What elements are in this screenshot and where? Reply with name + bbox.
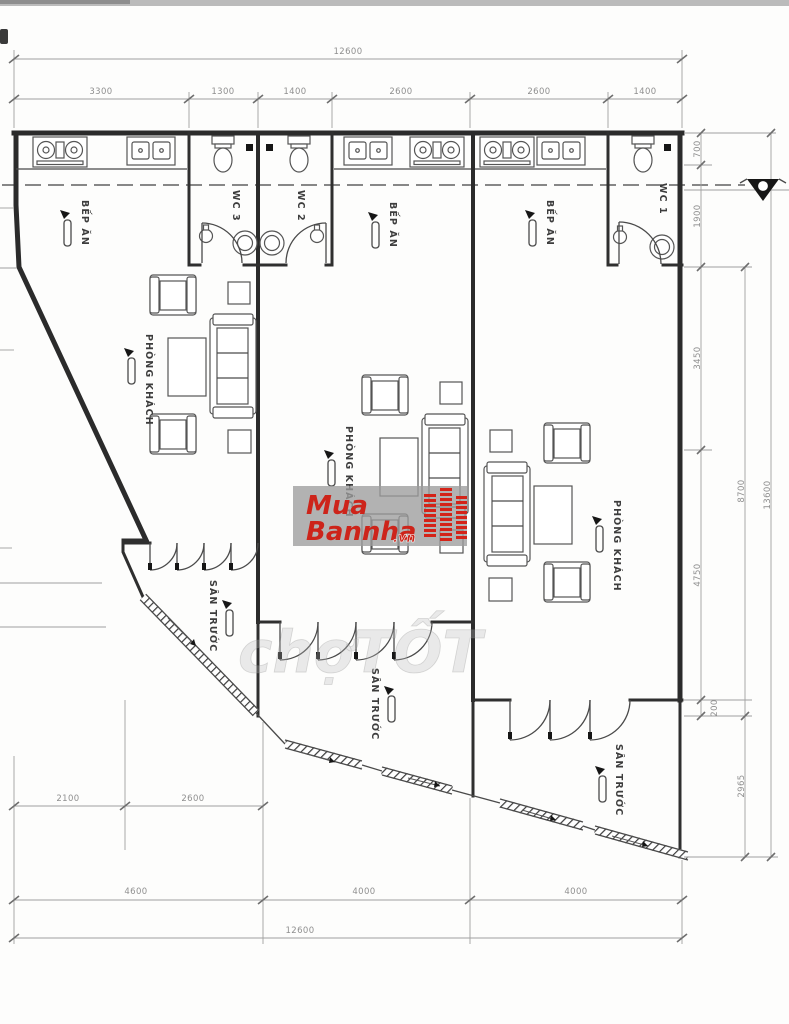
stove-icon: [410, 137, 464, 167]
dim-bl-2: 2600: [181, 794, 204, 804]
watermark-tld: .vn: [393, 531, 416, 546]
dimension-lines-bottom: 2100 2600 4600 4000 4000 12600: [9, 700, 687, 944]
wc3-label: WC 3: [230, 190, 241, 222]
label-pointer-icon: [525, 210, 536, 246]
label-pointer-icon: [384, 686, 395, 722]
wc3-room: [200, 136, 258, 263]
living-label-left: PHÒNG KHÁCH: [143, 334, 155, 426]
dim-right-3: 3450: [693, 346, 703, 369]
round-basin-icon: [260, 231, 284, 255]
dim-bottom-1: 4600: [124, 887, 147, 897]
dim-top-4: 2600: [389, 87, 412, 97]
wc2-room: [260, 136, 326, 263]
round-basin-icon: [650, 235, 674, 259]
label-pointer-icon: [592, 516, 603, 552]
label-pointer-icon: [368, 212, 379, 248]
sink-icon: [344, 137, 392, 165]
dim-right-col2-b: 2965: [737, 774, 747, 797]
folding-door-left-unit: [148, 543, 258, 570]
label-pointer-icon: [595, 766, 606, 802]
yard-label-left: SÂN TRƯỚC: [207, 580, 219, 652]
dimension-lines-right: 700 1900 3450 4750 200 8700 2965 13600: [684, 129, 789, 861]
kitchen-label-left: BẾP ĂN: [79, 200, 92, 246]
sofa-set-right-unit: [484, 423, 590, 602]
washbasin-icon: [311, 225, 324, 243]
dim-right-overall: 13600: [763, 480, 773, 509]
muabannha-watermark: Mua Bannha .vn: [293, 486, 467, 547]
dim-right-1: 700: [693, 140, 703, 157]
dim-bl-1: 2100: [56, 794, 79, 804]
label-pointer-icon: [60, 210, 71, 246]
kitchen-label-right: BẾP ĂN: [544, 200, 557, 246]
dim-top-5: 2600: [527, 87, 550, 97]
washbasin-icon: [614, 226, 627, 244]
kitchen-label-middle: BẾP ĂN: [387, 202, 400, 248]
kitchen-counters: [16, 137, 606, 169]
dim-top-overall: 12600: [333, 47, 362, 57]
dim-right-col2-a: 8700: [737, 479, 747, 502]
sink-icon: [127, 137, 175, 165]
toilet-icon: [212, 136, 234, 172]
living-label-right: PHÒNG KHÁCH: [611, 500, 623, 592]
dimension-lines-top: 12600 3300 1300 1400 2600 2600 1400: [9, 47, 687, 128]
floor-plan-page: BẾP ĂN BẾP ĂN BẾP ĂN PHÒNG KHÁCH PHÒNG K…: [0, 0, 789, 1024]
sofa-set-left-unit: [150, 275, 256, 454]
floor-plan-drawing: BẾP ĂN BẾP ĂN BẾP ĂN PHÒNG KHÁCH PHÒNG K…: [0, 0, 789, 1024]
dim-right-4: 4750: [693, 563, 703, 586]
wc1-label: WC 1: [657, 183, 668, 215]
yard-label-right: SÂN TRƯỚC: [613, 744, 625, 816]
folding-door-right-unit: [508, 700, 630, 740]
dim-top-1: 3300: [89, 87, 112, 97]
label-pointer-icon: [124, 348, 135, 384]
scan-blob: [0, 29, 8, 44]
stove-icon: [480, 137, 534, 167]
toilet-icon: [632, 136, 654, 172]
dim-right-5: 200: [710, 699, 720, 716]
chotot-watermark: chợTỐT: [238, 610, 486, 686]
wc2-label: WC 2: [295, 190, 306, 222]
toilet-icon: [288, 136, 310, 172]
dim-top-2: 1300: [211, 87, 234, 97]
scan-edge-top-dark: [0, 0, 130, 4]
dim-right-2: 1900: [693, 204, 703, 227]
dim-bottom-overall: 12600: [285, 926, 314, 936]
stove-icon: [33, 137, 87, 167]
sink-icon: [537, 137, 585, 165]
dim-top-6: 1400: [633, 87, 656, 97]
dim-top-3: 1400: [283, 87, 306, 97]
label-pointer-icon: [222, 600, 233, 636]
dim-bottom-2: 4000: [352, 887, 375, 897]
dim-bottom-3: 4000: [564, 887, 587, 897]
label-pointer-icon: [324, 450, 335, 486]
